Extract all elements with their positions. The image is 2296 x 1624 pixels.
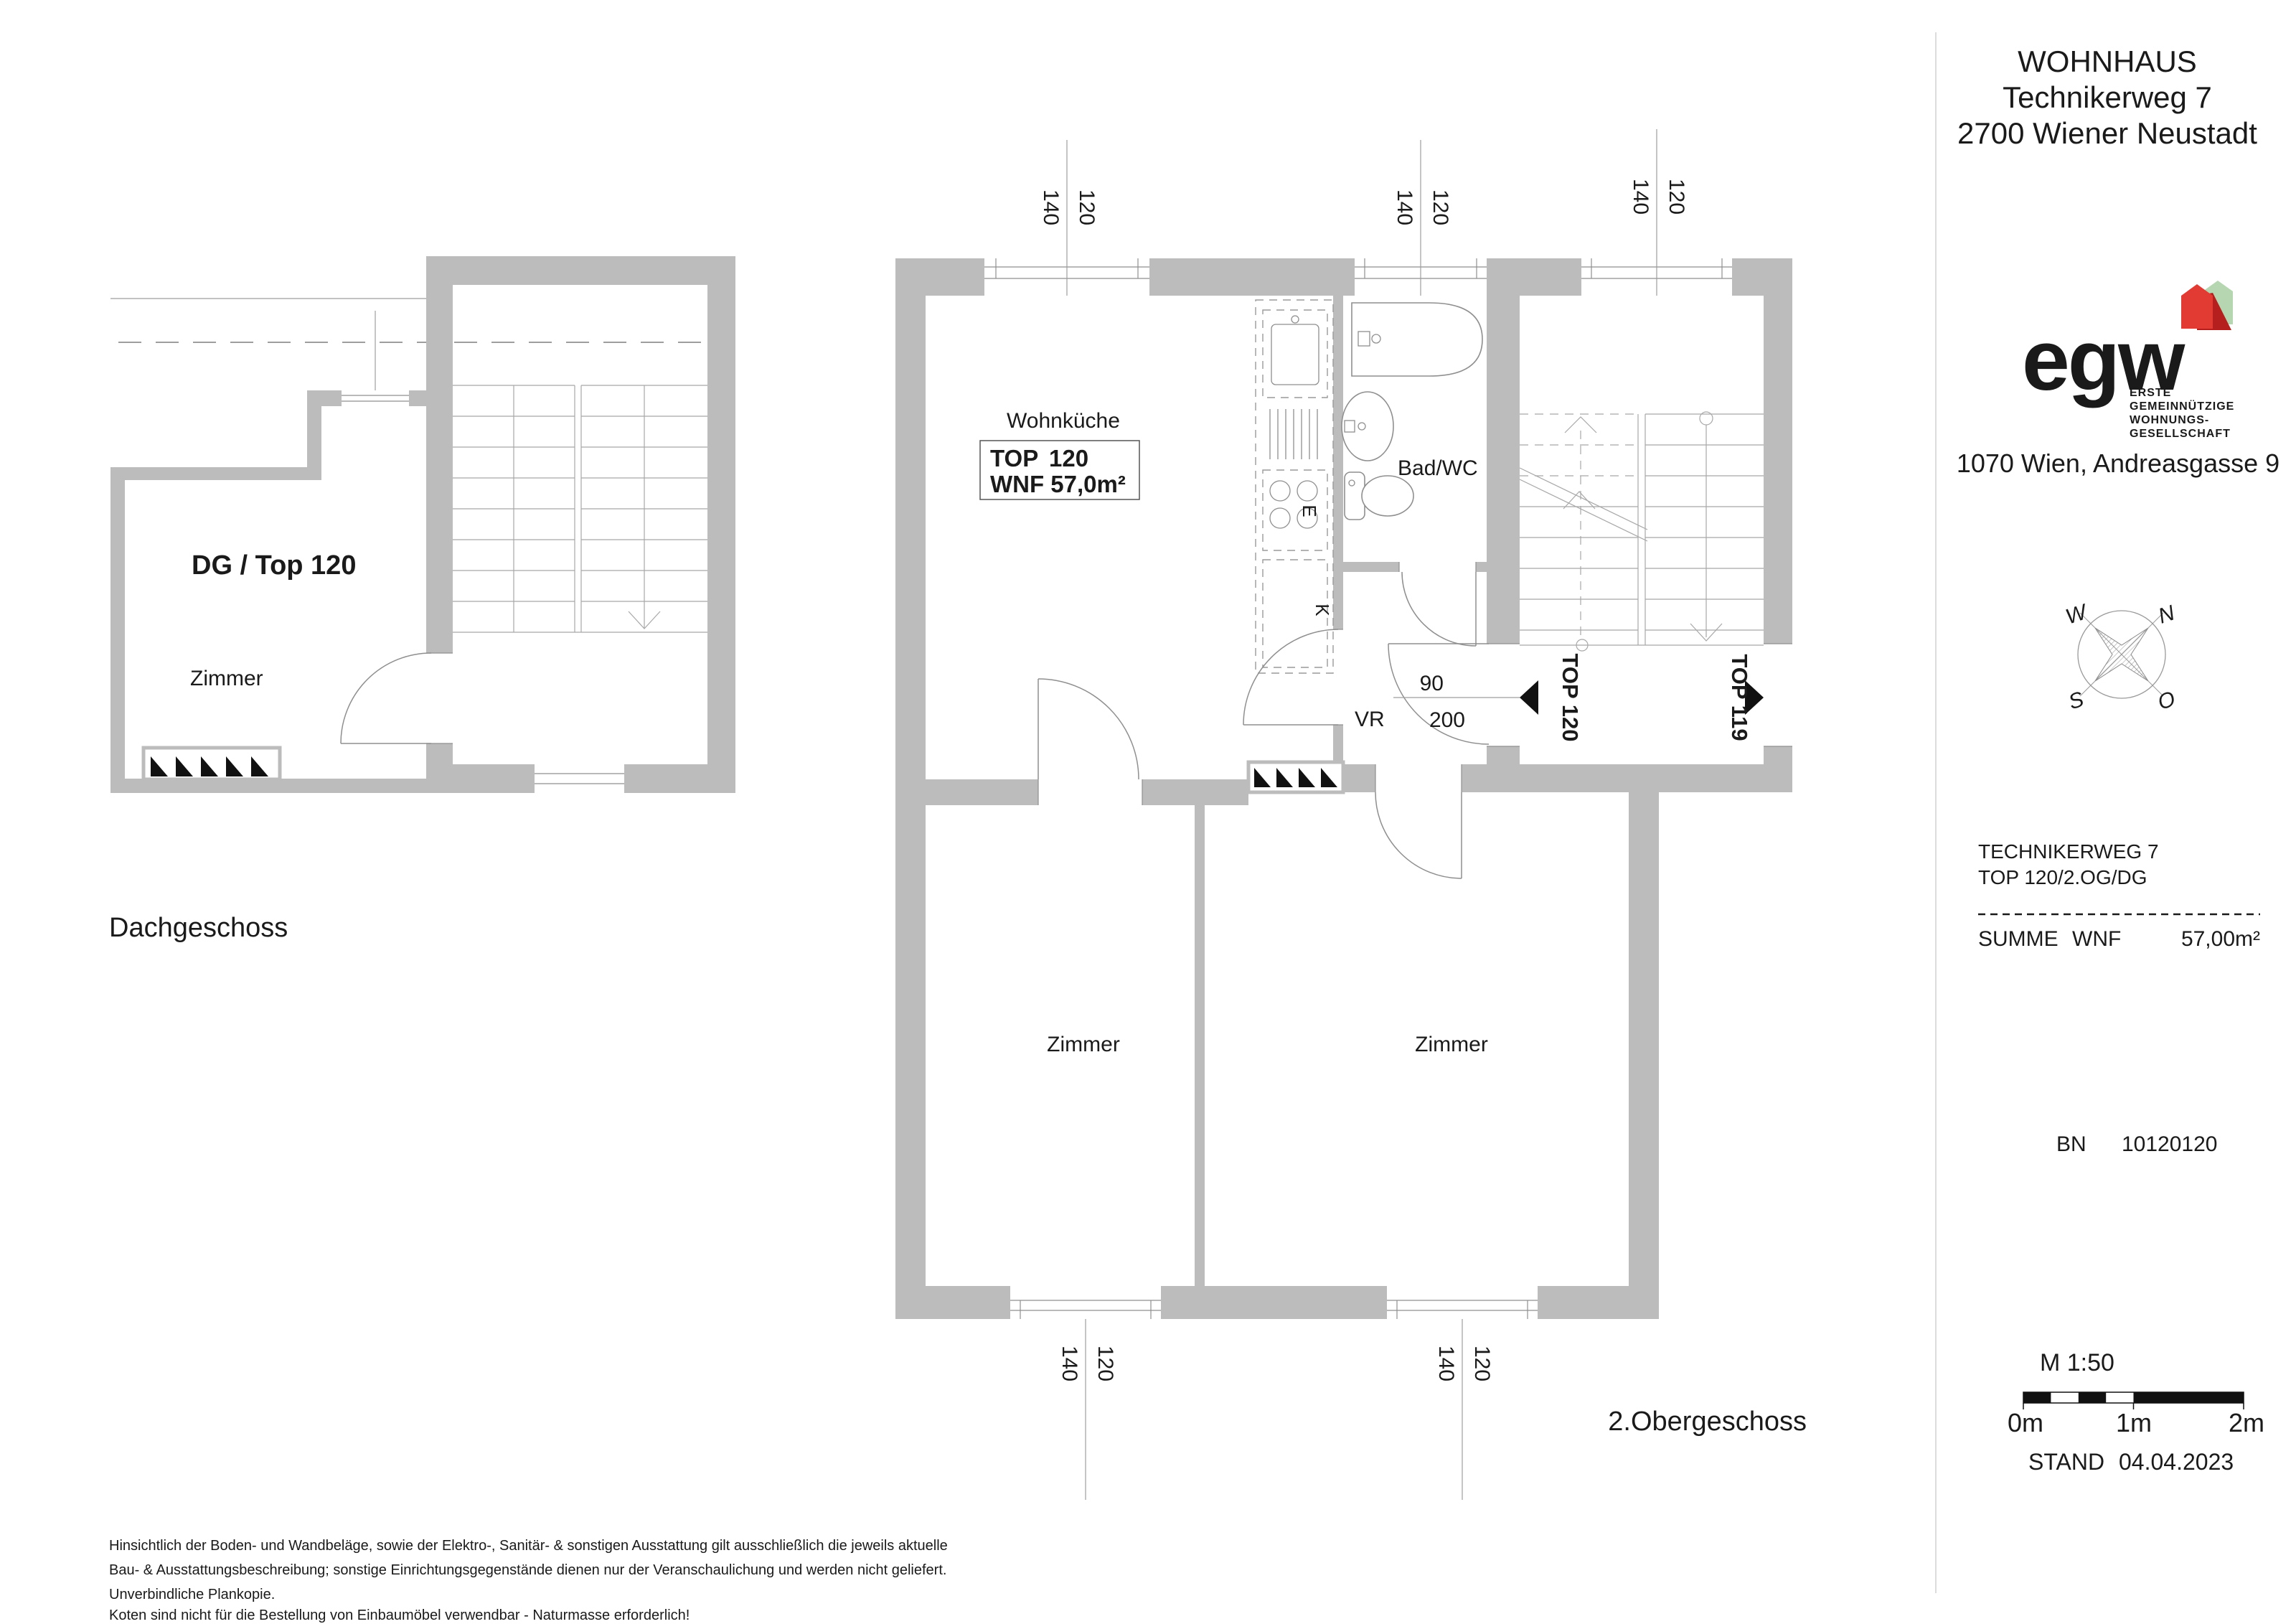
project-street: Technikerweg 7 bbox=[2003, 80, 2212, 114]
dim-label: 120 bbox=[1429, 189, 1452, 225]
logo-sub-2: GEMEINNÜTZIGE bbox=[2130, 399, 2234, 413]
scale-0m: 0m bbox=[2008, 1408, 2043, 1437]
info-unit: TOP 120/2.OG/DG bbox=[1978, 866, 2147, 888]
dim-label: 140 bbox=[1058, 1346, 1081, 1381]
unit-box-number: 120 bbox=[1049, 445, 1088, 471]
dim-label: 120 bbox=[1665, 179, 1688, 215]
washbasin-icon bbox=[1342, 392, 1393, 461]
scale-1m: 1m bbox=[2116, 1408, 2152, 1437]
project-city: 2700 Wiener Neustadt bbox=[1957, 116, 2257, 150]
summe-label: SUMME bbox=[1978, 927, 2059, 951]
unit-box-area: WNF 57,0m² bbox=[990, 471, 1126, 497]
summe-label-2: WNF bbox=[2072, 927, 2121, 951]
dim-label: 140 bbox=[1629, 179, 1652, 215]
logo-sub-4: GESELLSCHAFT bbox=[2130, 428, 2231, 440]
og-window-bottom-2 bbox=[1387, 1286, 1538, 1319]
door-height: 200 bbox=[1429, 708, 1465, 732]
page-background bbox=[0, 0, 2296, 1624]
room-label-vr: VR bbox=[1355, 708, 1385, 731]
og-caption: 2.Obergeschoss bbox=[1608, 1407, 1807, 1437]
entry-label-top120: TOP 120 bbox=[1558, 654, 1583, 742]
footer-line-3: Unverbindliche Plankopie. bbox=[109, 1587, 275, 1602]
dim-label: 120 bbox=[1093, 1346, 1117, 1381]
footer-line-2: Bau- & Ausstattungsbeschreibung; sonstig… bbox=[109, 1562, 946, 1578]
dg-hatch-strip bbox=[143, 748, 280, 779]
entry-label-top119: TOP 119 bbox=[1727, 654, 1752, 741]
room-label-zimmer-2: Zimmer bbox=[1415, 1033, 1488, 1056]
og-hatch-strip bbox=[1248, 762, 1343, 792]
room-label-zimmer-1: Zimmer bbox=[1047, 1033, 1120, 1056]
scale-2m: 2m bbox=[2229, 1408, 2264, 1437]
dim-label: 140 bbox=[1393, 189, 1416, 225]
stand-value: 04.04.2023 bbox=[2119, 1449, 2234, 1475]
dim-label: 140 bbox=[1039, 189, 1063, 225]
bn-value: 10120120 bbox=[2122, 1132, 2217, 1156]
summe-value: 57,00m² bbox=[2181, 927, 2260, 951]
unit-box-label: TOP bbox=[990, 445, 1038, 471]
stove-label: E bbox=[1299, 504, 1320, 517]
stand-label: STAND bbox=[2028, 1449, 2104, 1475]
footer-line-4: Koten sind nicht für die Bestellung von … bbox=[109, 1607, 690, 1623]
logo-sub-3: WOHNUNGS- bbox=[2130, 414, 2209, 426]
door-width: 90 bbox=[1420, 672, 1444, 695]
floor-plan-sheet: DG / Top 120 Zimmer Dachgeschoss bbox=[0, 0, 2296, 1624]
og-window-bottom-1 bbox=[1010, 1286, 1161, 1319]
dim-label: 140 bbox=[1434, 1346, 1458, 1381]
project-title: WOHNHAUS bbox=[2018, 44, 2197, 78]
scale-label: M 1:50 bbox=[2040, 1349, 2114, 1376]
dim-label: 120 bbox=[1075, 189, 1098, 225]
dim-label: 120 bbox=[1470, 1346, 1494, 1381]
room-label-bad: Bad/WC bbox=[1398, 456, 1478, 480]
fridge-label: K bbox=[1312, 604, 1333, 616]
bn-label: BN bbox=[2056, 1132, 2086, 1156]
room-label-wohnkueche: Wohnküche bbox=[1007, 409, 1120, 433]
footer-line-1: Hinsichtlich der Boden- und Wandbeläge, … bbox=[109, 1538, 948, 1554]
logo-address: 1070 Wien, Andreasgasse 9 bbox=[1957, 449, 2279, 478]
bathtub-icon bbox=[1352, 303, 1482, 376]
dg-room-label: Zimmer bbox=[190, 667, 263, 690]
dg-title: DG / Top 120 bbox=[192, 550, 356, 581]
logo-sub-1: ERSTE bbox=[2130, 387, 2171, 399]
dg-caption: Dachgeschoss bbox=[109, 913, 288, 943]
dg-window-bottom bbox=[535, 764, 624, 793]
info-street: TECHNIKERWEG 7 bbox=[1978, 840, 2159, 863]
